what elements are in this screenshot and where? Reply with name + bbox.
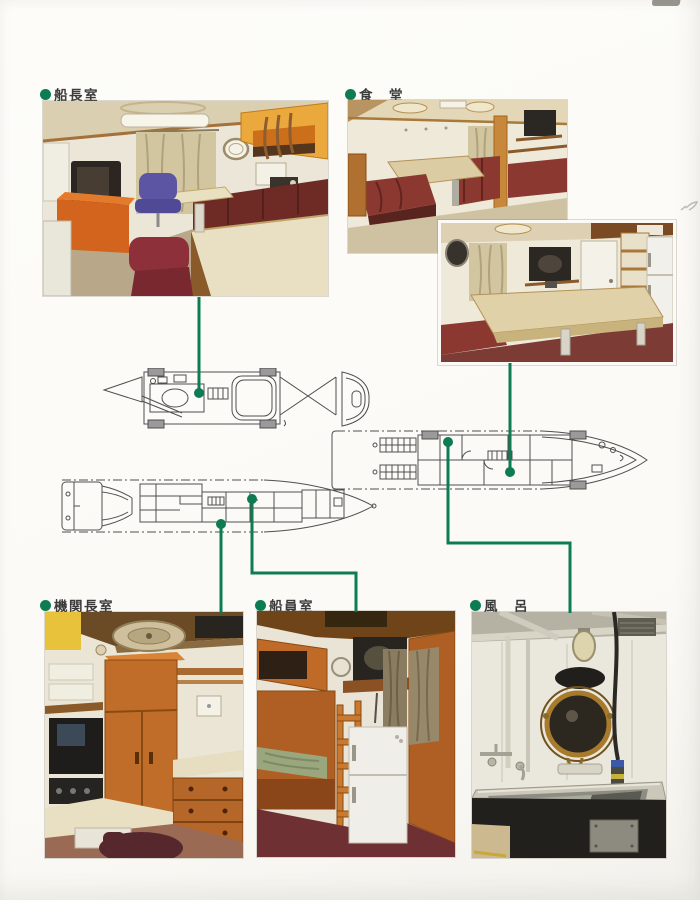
scan-smudge <box>652 0 681 6</box>
captain-room-illustration <box>43 101 328 296</box>
photo-bath <box>472 612 666 858</box>
lower-deck-plan-drawing <box>60 472 380 540</box>
boat-deck-plan <box>102 368 370 430</box>
lower-deck-plan <box>60 472 380 540</box>
scanned-magazine-page: 船長室 食 堂 機関長室 船員室 風 呂 <box>0 0 700 900</box>
pencil-mark <box>678 198 700 216</box>
chief-engineer-room-illustration <box>45 612 243 858</box>
boat-deck-plan-drawing <box>102 368 370 430</box>
green-bullet-icon <box>40 600 51 611</box>
crew-room-illustration <box>257 611 455 857</box>
green-bullet-icon <box>470 600 481 611</box>
dining-room-lower-illustration <box>441 223 673 362</box>
photo-dining-room-lower <box>441 223 673 362</box>
green-bullet-icon <box>255 600 266 611</box>
bath-illustration <box>472 612 666 858</box>
green-bullet-icon <box>40 89 51 100</box>
green-bullet-icon <box>345 89 356 100</box>
photo-crew-room <box>257 611 455 857</box>
photo-captain-room <box>43 101 328 296</box>
photo-chief-engineer-room <box>45 612 243 858</box>
